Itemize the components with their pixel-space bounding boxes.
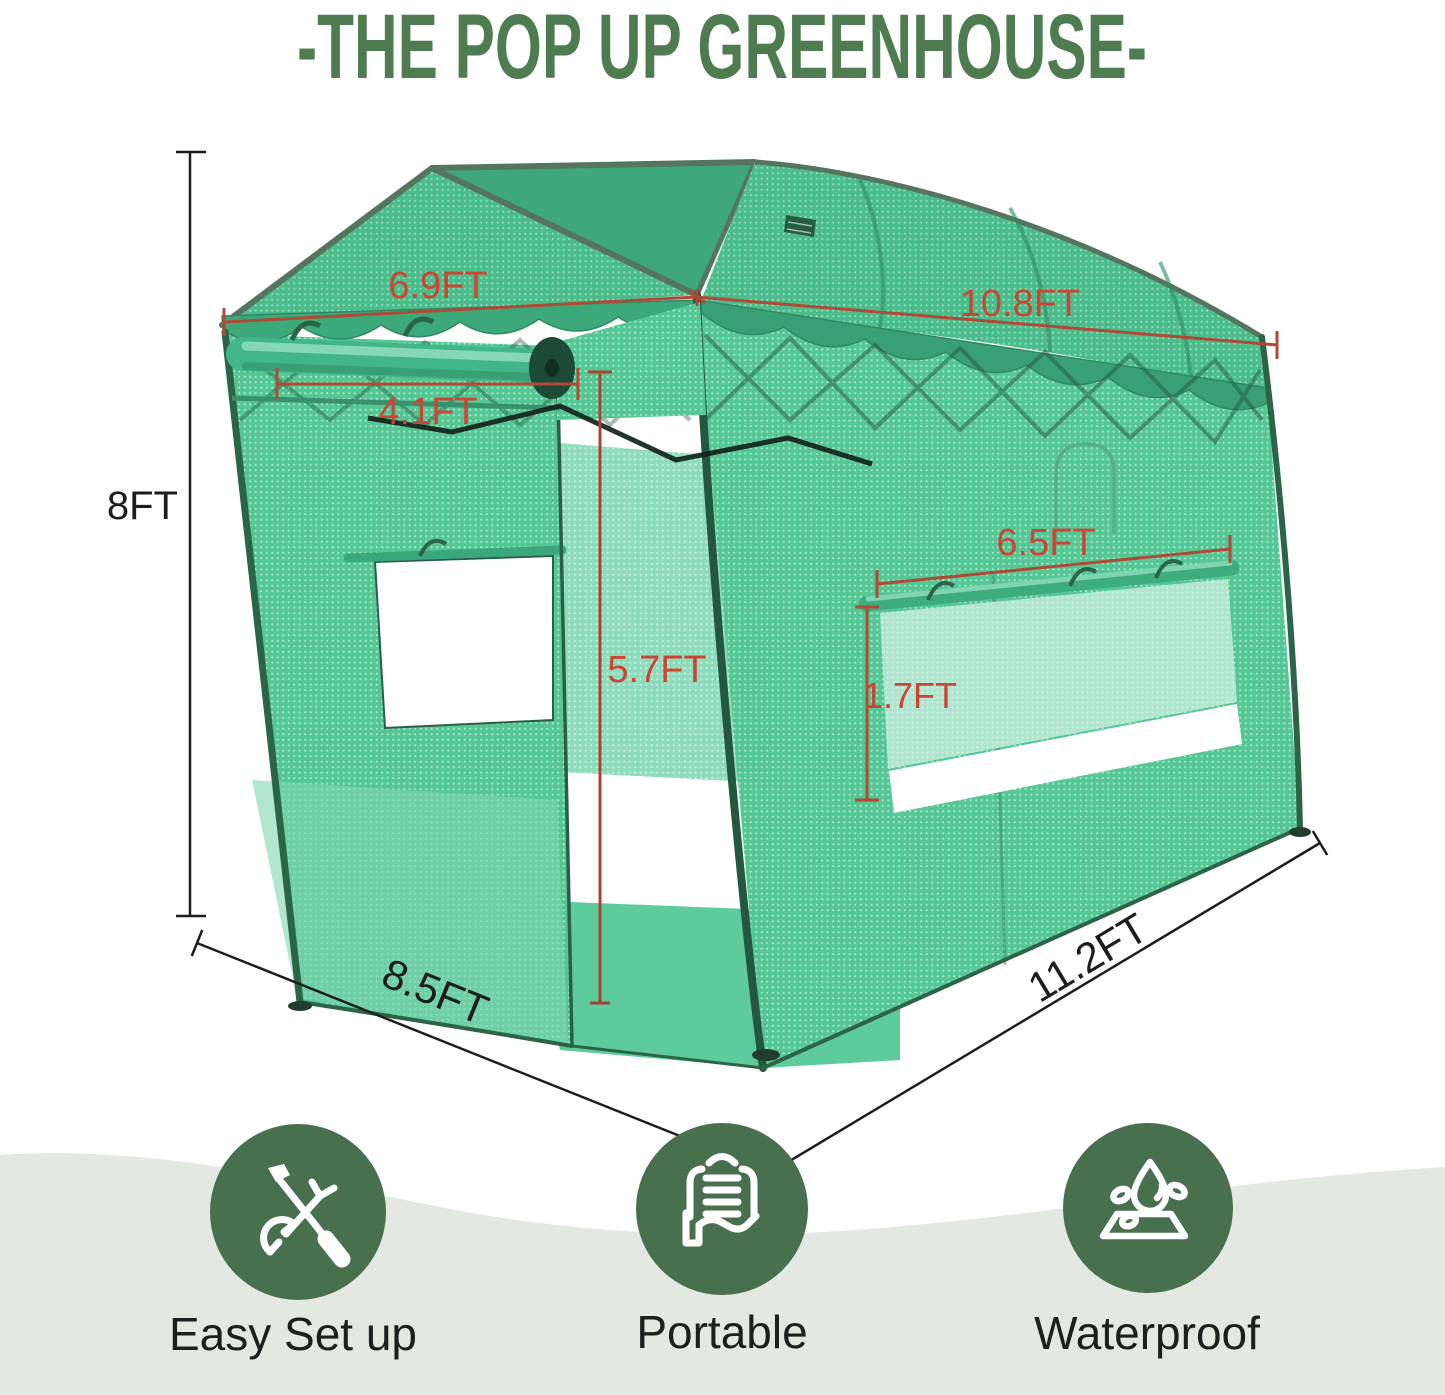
- dimension-label-door-width: 4.1FT: [378, 391, 477, 433]
- feature-label-waterproof: Waterproof: [1034, 1307, 1260, 1359]
- dimension-label-door-height: 5.7FT: [607, 649, 706, 691]
- dimension-label-canopy-width: 6.9FT: [388, 265, 487, 307]
- feature-circle: [636, 1123, 808, 1295]
- page-title: -THE POP UP GREENHOUSE-: [297, 0, 1147, 98]
- dimension-label-window-width: 6.5FT: [996, 522, 1095, 564]
- greenhouse-diagram: 8FT 8.5FT 11.2FT 6.9FT 10.8FT: [0, 0, 1445, 1395]
- feature-portable: Portable: [636, 1123, 808, 1358]
- feature-circle: [210, 1124, 386, 1300]
- feature-label-portable: Portable: [636, 1306, 807, 1358]
- dimension-label-roof-length: 10.8FT: [960, 283, 1080, 325]
- left-wall-window: [375, 556, 553, 728]
- feature-label-easy-setup: Easy Set up: [169, 1308, 417, 1360]
- dimension-label-window-height: 1.7FT: [863, 675, 957, 716]
- dimension-label-height: 8FT: [107, 484, 178, 528]
